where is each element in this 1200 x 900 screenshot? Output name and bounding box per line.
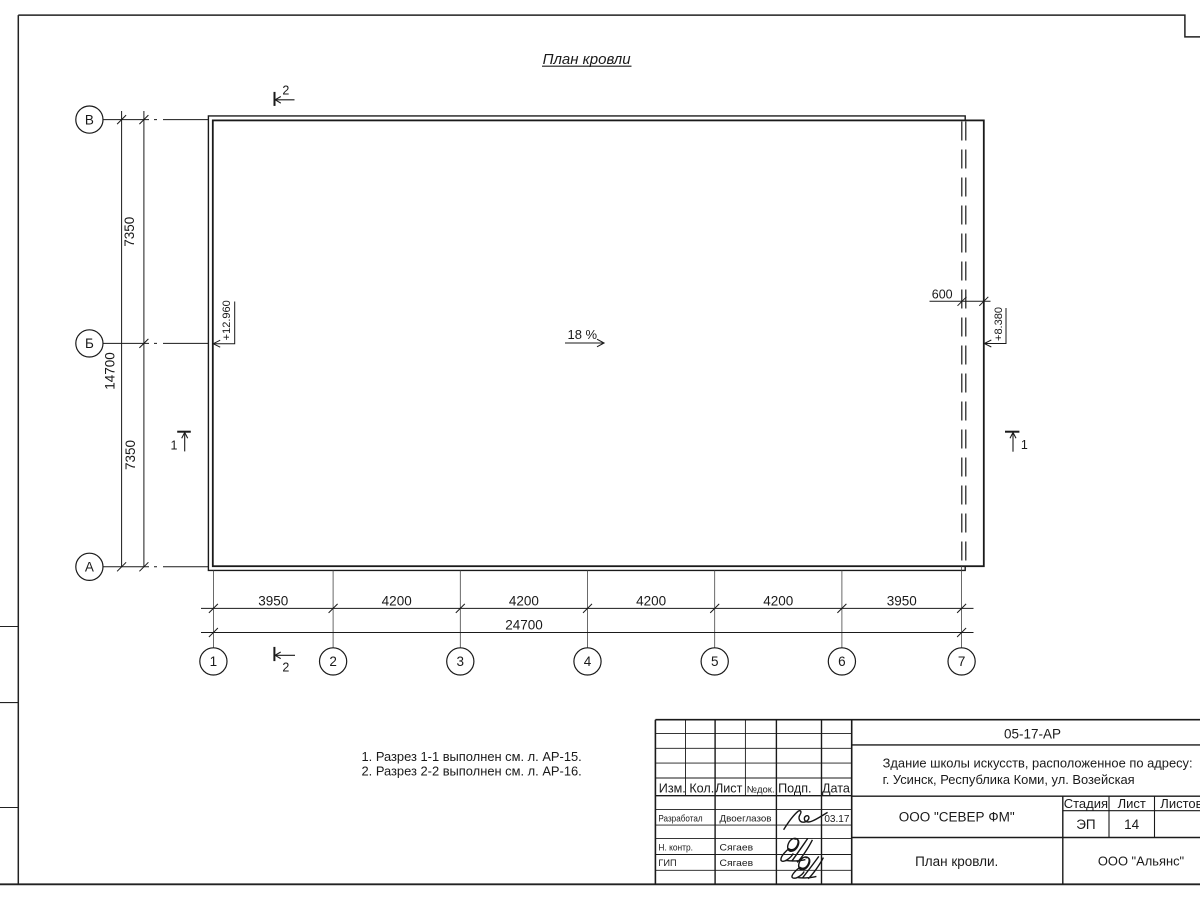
svg-text:ООО "Альянс": ООО "Альянс" xyxy=(1098,854,1185,869)
svg-text:Н. контр.: Н. контр. xyxy=(658,842,693,852)
svg-text:г. Усинск, Республика Коми, ул: г. Усинск, Республика Коми, ул. Возейска… xyxy=(883,772,1135,787)
svg-text:600: 600 xyxy=(932,287,953,301)
svg-text:ЭП: ЭП xyxy=(1076,817,1095,832)
svg-text:А: А xyxy=(85,560,94,575)
svg-text:4200: 4200 xyxy=(636,593,666,608)
svg-text:24700: 24700 xyxy=(505,618,543,633)
svg-text:1: 1 xyxy=(1021,438,1028,452)
svg-text:Сягаев: Сягаев xyxy=(720,858,754,868)
svg-text:№док.: №док. xyxy=(747,784,775,795)
svg-text:1: 1 xyxy=(171,438,178,452)
svg-text:1: 1 xyxy=(210,654,218,669)
svg-text:Б: Б xyxy=(85,336,94,351)
svg-text:Сягаев: Сягаев xyxy=(720,842,754,852)
svg-text:4200: 4200 xyxy=(382,593,412,608)
svg-text:7350: 7350 xyxy=(123,440,138,470)
svg-text:1. Разрез 1-1 выполнен см. л.: 1. Разрез 1-1 выполнен см. л. АР-15. xyxy=(362,749,582,764)
svg-text:План кровли: План кровли xyxy=(543,51,632,68)
svg-text:План кровли.: План кровли. xyxy=(915,854,998,869)
svg-text:Изм.: Изм. xyxy=(659,781,686,795)
svg-text:Двоеглазов: Двоеглазов xyxy=(720,814,772,824)
svg-text:3950: 3950 xyxy=(258,593,288,608)
svg-text:4200: 4200 xyxy=(509,593,539,608)
svg-text:4: 4 xyxy=(584,654,592,669)
svg-text:Разработал: Разработал xyxy=(658,814,702,824)
svg-text:05-17-АР: 05-17-АР xyxy=(1004,727,1061,742)
svg-text:3950: 3950 xyxy=(887,593,917,608)
svg-text:В: В xyxy=(85,112,94,127)
svg-text:2: 2 xyxy=(329,654,337,669)
svg-text:7350: 7350 xyxy=(122,217,137,247)
svg-text:14: 14 xyxy=(1124,817,1140,832)
svg-text:2. Разрез 2-2 выполнен см. л.: 2. Разрез 2-2 выполнен см. л. АР-16. xyxy=(362,764,582,779)
svg-text:14700: 14700 xyxy=(103,352,118,390)
svg-text:+12.960: +12.960 xyxy=(221,300,233,340)
svg-text:Кол.: Кол. xyxy=(689,781,714,795)
svg-text:+8.380: +8.380 xyxy=(993,307,1005,341)
svg-text:2: 2 xyxy=(282,661,289,675)
svg-text:Дата: Дата xyxy=(822,781,850,795)
svg-text:Листов: Листов xyxy=(1160,796,1200,811)
svg-text:03.17: 03.17 xyxy=(824,814,849,825)
svg-text:Стадия: Стадия xyxy=(1064,796,1108,811)
svg-text:6: 6 xyxy=(838,654,846,669)
svg-text:2: 2 xyxy=(282,83,289,97)
svg-text:4200: 4200 xyxy=(763,593,793,608)
svg-text:Лист: Лист xyxy=(715,781,743,795)
svg-text:3: 3 xyxy=(457,654,465,669)
svg-text:ООО "СЕВЕР ФМ": ООО "СЕВЕР ФМ" xyxy=(899,810,1015,825)
svg-text:5: 5 xyxy=(711,654,719,669)
svg-text:7: 7 xyxy=(958,654,966,669)
svg-text:Лист: Лист xyxy=(1118,796,1146,811)
svg-text:Подп.: Подп. xyxy=(778,781,811,795)
svg-text:ГИП: ГИП xyxy=(658,858,676,868)
svg-text:Здание школы искусств, располо: Здание школы искусств, расположенное по … xyxy=(883,756,1193,771)
